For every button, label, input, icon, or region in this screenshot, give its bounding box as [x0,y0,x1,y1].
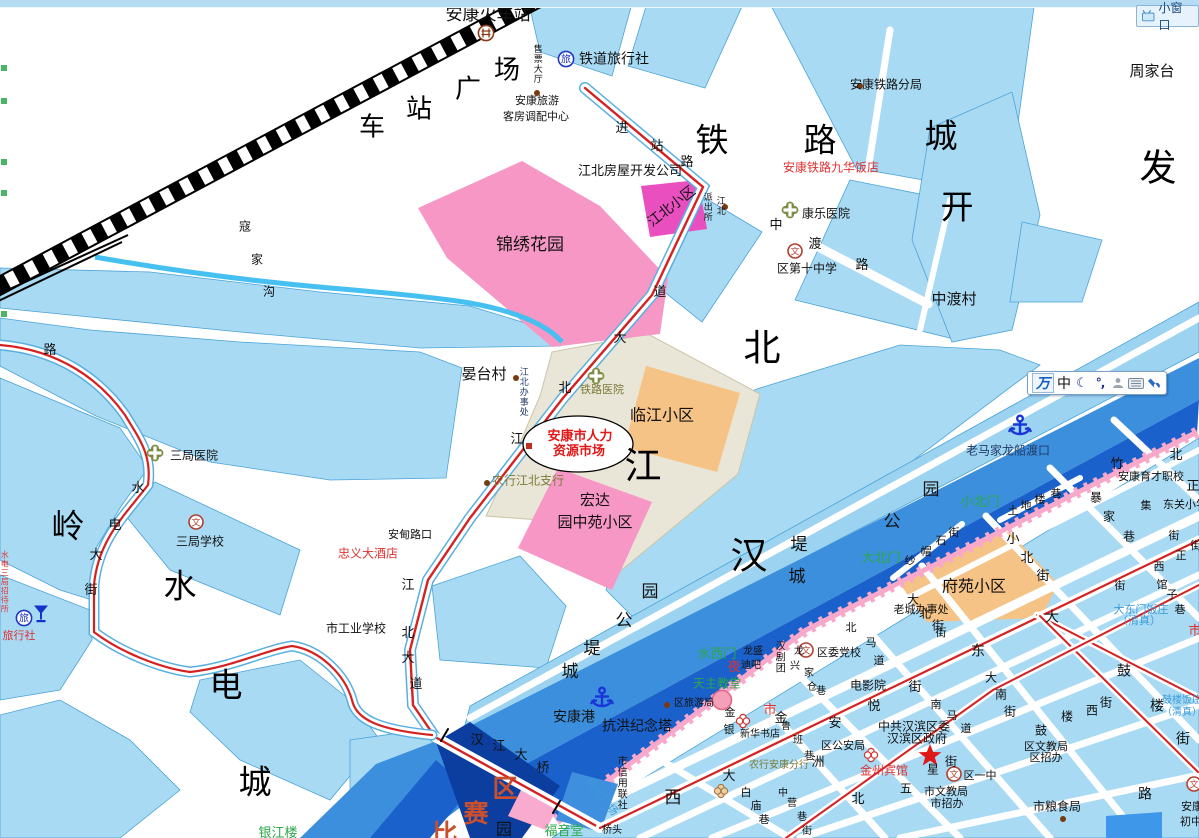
ime-language-bar[interactable]: 万 中 ☾ °, [1027,371,1167,395]
ime-logo-button[interactable]: 万 [1032,373,1054,393]
ime-mode-button[interactable]: 中 [1056,374,1072,392]
ime-punctuation-button[interactable]: °, [1092,374,1108,392]
window-top-strip [0,0,1199,8]
tv-icon [1142,10,1155,22]
ime-fullwidth-icon[interactable]: ☾ [1074,374,1090,392]
ime-keyboard-icon[interactable] [1128,374,1144,392]
map-viewport[interactable]: 安康火车站售票大厅铁道旅行社安康旅游客房调配中心进站路车站广场江北房屋开发公司江… [0,0,1199,838]
ime-settings-wrench-icon[interactable] [1146,374,1162,392]
mini-window-button[interactable]: 小窗口 [1136,5,1199,27]
map-canvas [0,0,1199,838]
ime-user-icon[interactable] [1110,374,1126,392]
mini-window-label: 小窗口 [1158,0,1193,33]
